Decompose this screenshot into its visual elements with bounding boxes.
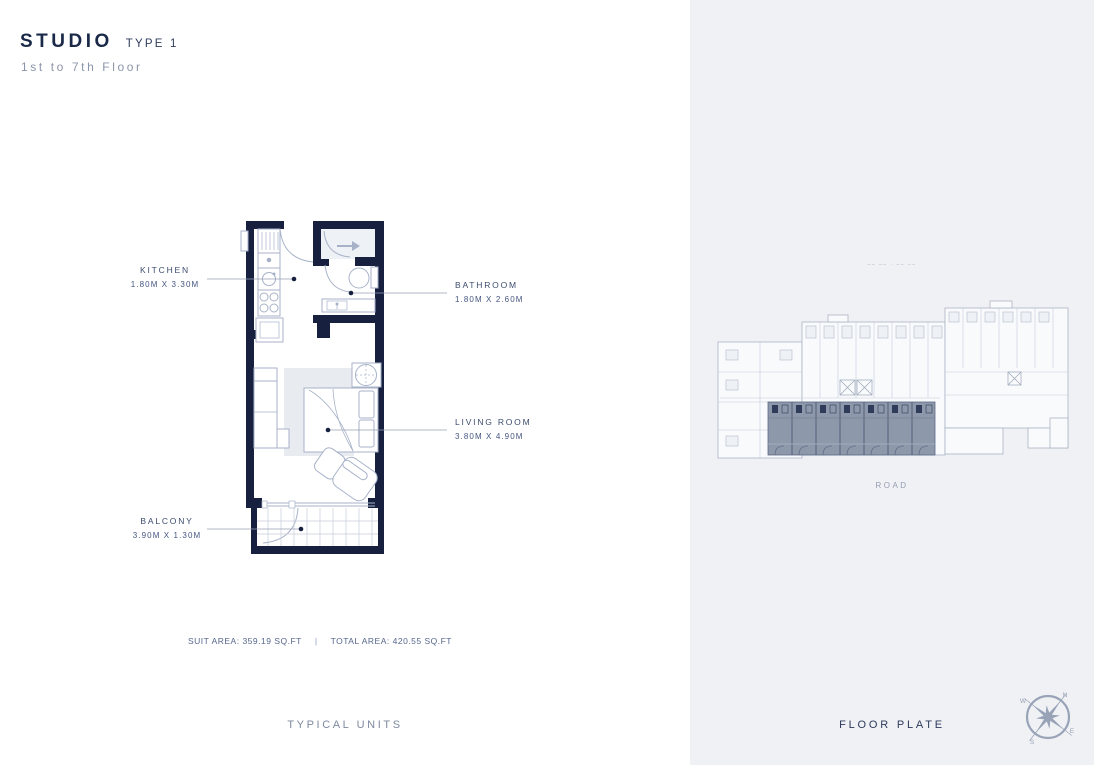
toilet-icon: [349, 268, 369, 288]
compass-south-label: S: [1030, 739, 1035, 746]
floor-plate-caption: FLOOR PLATE: [690, 719, 1094, 731]
highlighted-units: [768, 402, 935, 455]
floor-range-subtitle: 1st to 7th Floor: [21, 60, 143, 74]
plot-dimension-marks: –– –– · –– ––: [792, 262, 992, 268]
kitchen-label: KITCHEN 1.80M X 3.30M: [110, 266, 220, 289]
wardrobe: [254, 368, 277, 381]
typical-units-panel: STUDIO TYPE 1 1st to 7th Floor KITCHEN 1…: [0, 0, 690, 765]
unit-floor-plan: [0, 0, 690, 765]
floor-plate-drawing: N W S E: [690, 0, 1094, 765]
road-label: ROAD: [690, 481, 1094, 490]
pillow: [359, 391, 374, 418]
bathroom-label: BATHROOM 1.80M X 2.60M: [455, 281, 524, 304]
living-room-label: LIVING ROOM 3.80M X 4.90M: [455, 418, 531, 441]
compass-north-label: N: [1063, 692, 1068, 699]
unit-type-variant: TYPE 1: [126, 38, 179, 50]
compass-west-label: W: [1020, 698, 1027, 705]
bathroom-door-arc: [325, 265, 351, 292]
area-summary: SUIT AREA: 359.19 SQ.FT | TOTAL AREA: 42…: [145, 636, 495, 646]
balcony: [257, 501, 378, 546]
unit-type-title: STUDIO: [20, 31, 113, 53]
toilet-tank: [371, 267, 378, 288]
page-title: STUDIO TYPE 1: [20, 31, 179, 53]
compass-icon: N W S E: [1006, 675, 1090, 759]
total-area: TOTAL AREA: 420.55 SQ.FT: [331, 636, 452, 646]
balcony-label: BALCONY 3.90M X 1.30M: [112, 517, 222, 540]
suit-area: SUIT AREA: 359.19 SQ.FT: [188, 636, 302, 646]
entrance-door-arc: [280, 229, 313, 262]
floor-plate-panel: N W S E –– –– · –– –– ROAD FLOOR PLATE: [690, 0, 1094, 765]
typical-units-caption: TYPICAL UNITS: [0, 719, 690, 731]
pillow: [359, 420, 374, 447]
entry-vestibule-floor: [321, 229, 375, 259]
area-divider: |: [315, 636, 318, 646]
bathroom-fixtures: [322, 267, 378, 312]
